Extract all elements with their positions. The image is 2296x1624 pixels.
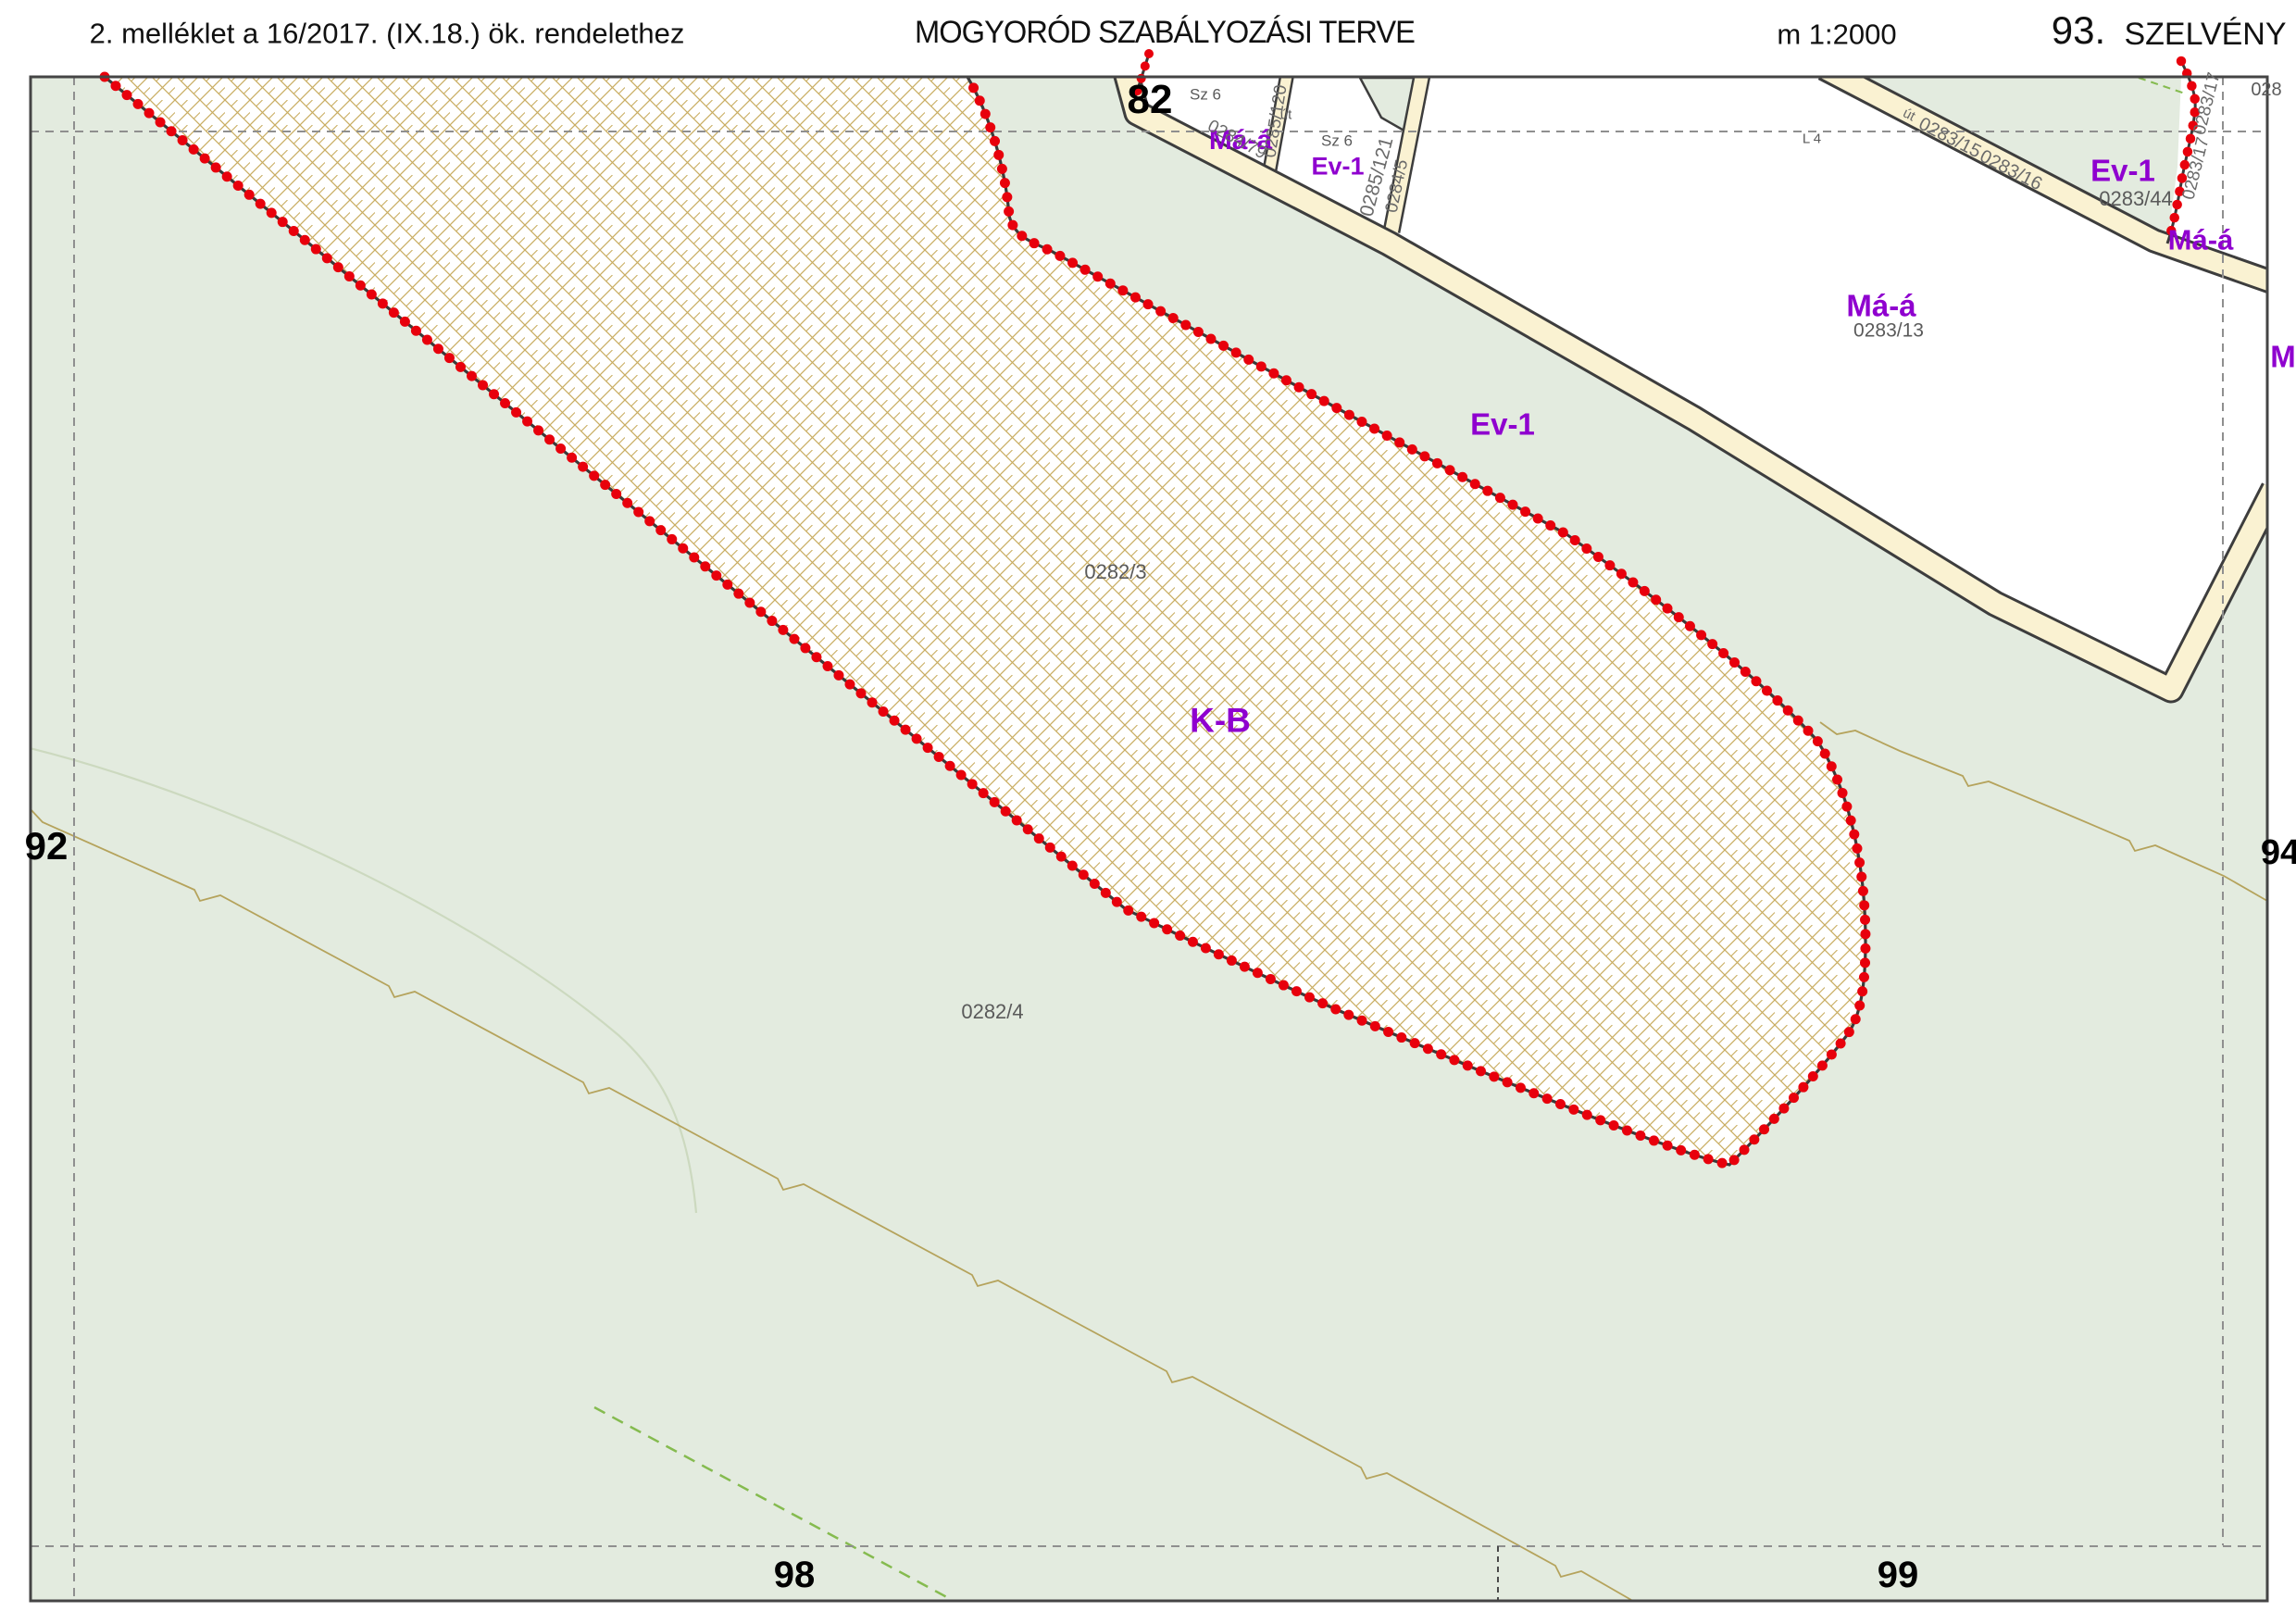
map-title: MOGYORÓD SZABÁLYOZÁSI TERVE <box>915 17 1415 48</box>
zone-maa-right: Má-á <box>1846 291 1915 321</box>
parcel-0282-3: 0282/3 <box>1084 562 1146 582</box>
parcel-0282-4: 0282/4 <box>961 1002 1023 1022</box>
gridnum-left: 92 <box>25 827 69 866</box>
parcel-0283-13: 0283/13 <box>1853 321 1924 341</box>
zone-kb: K-B <box>1190 704 1251 738</box>
annex-note: 2. melléklet a 16/2017. (IX.18.) ök. ren… <box>90 19 685 48</box>
map-scale: m 1:2000 <box>1777 20 1896 49</box>
parcel-sz6-b: Sz 6 <box>1321 133 1353 149</box>
gridnum-right: 94 <box>2261 835 2296 870</box>
gridnum-top: 82 <box>1128 80 1173 120</box>
sheet-number: 93. <box>2052 11 2105 50</box>
parcel-0283-44: 0283/44 <box>2099 189 2173 209</box>
zone-ev1-mid: Ev-1 <box>1470 409 1535 440</box>
zone-maa-clipped: M <box>2270 342 2296 372</box>
parcel-l4: L 4 <box>1803 132 1821 146</box>
zone-maa-far-right: Má-á <box>2168 226 2234 255</box>
zone-ev1-right: Ev-1 <box>2090 156 2155 186</box>
gridnum-bottom-left: 98 <box>774 1556 816 1593</box>
parcel-028-clipped: 028 <box>2251 81 2281 99</box>
gridnum-bottom-right: 99 <box>1878 1556 1919 1593</box>
map-canvas <box>0 0 2296 1624</box>
sheet-label: SZELVÉNY <box>2124 19 2286 50</box>
zone-ev1-top: Ev-1 <box>1311 155 1364 180</box>
parcel-sz6-a: Sz 6 <box>1190 87 1221 103</box>
zoning-map-sheet: 2. melléklet a 16/2017. (IX.18.) ök. ren… <box>0 0 2296 1624</box>
